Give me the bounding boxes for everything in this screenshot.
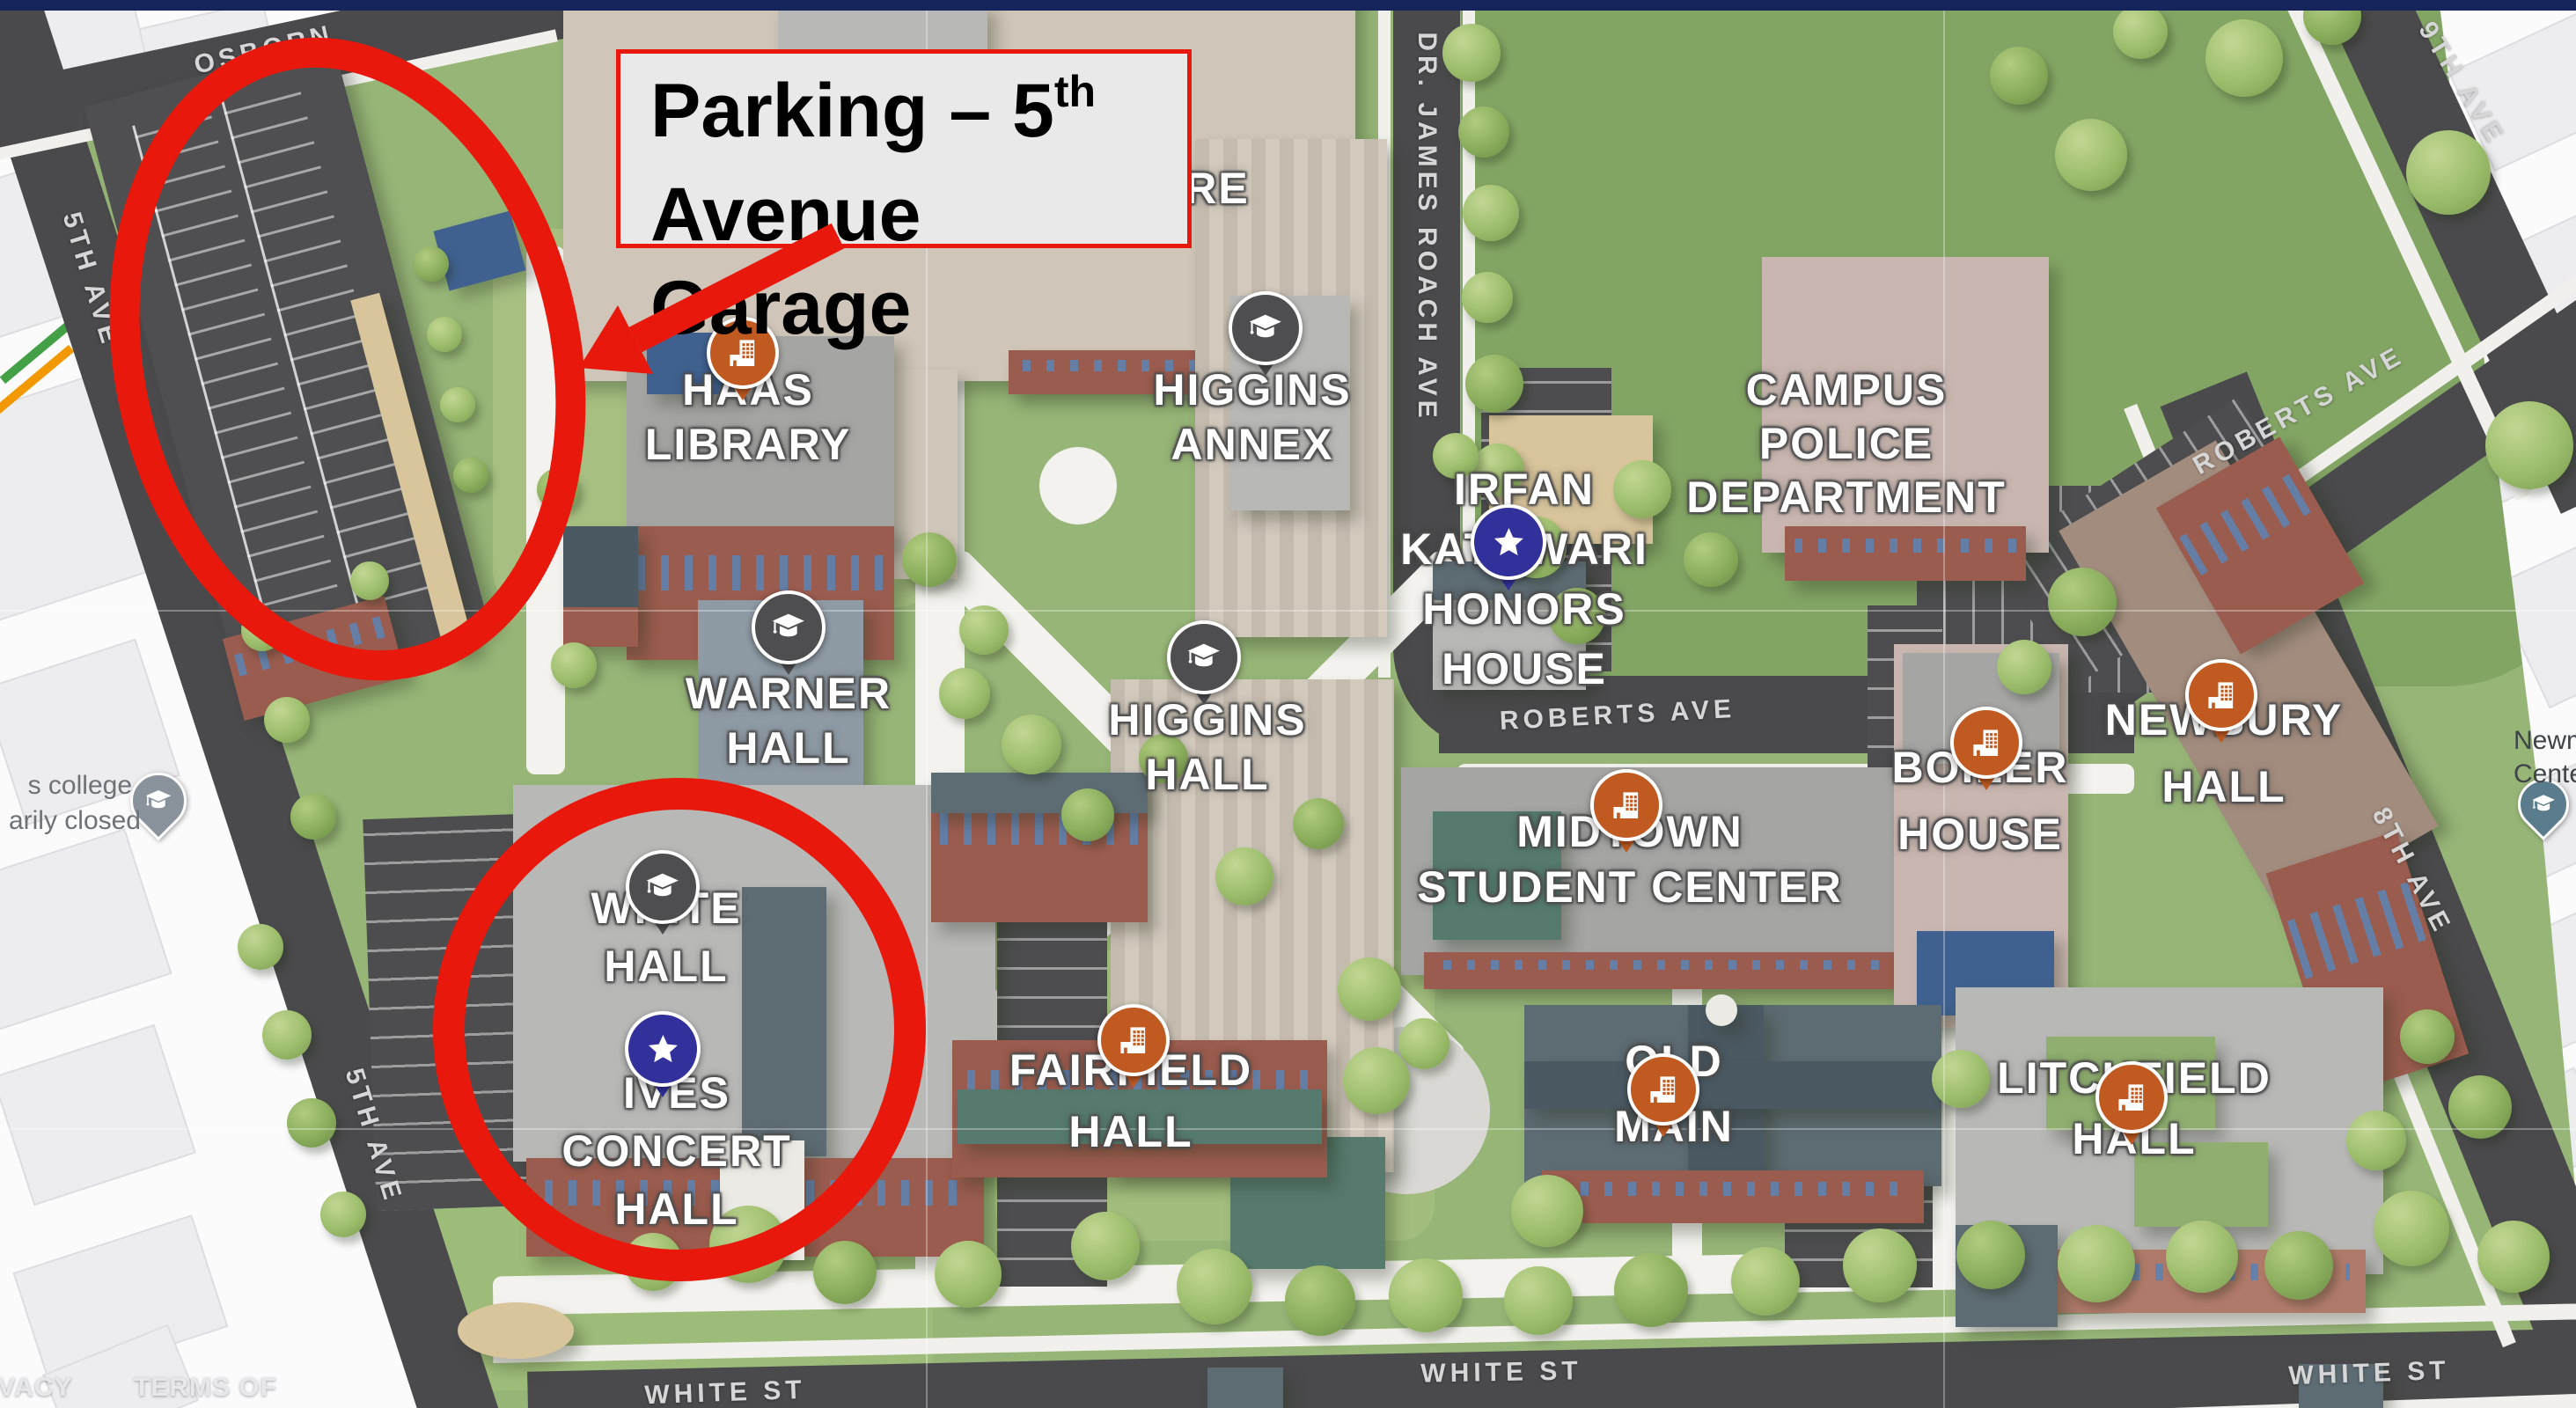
top-navy-bar <box>0 0 2576 11</box>
building-icon <box>1590 769 1662 841</box>
building-label-line: HOUSE <box>1892 801 2069 868</box>
tree <box>1071 1212 1140 1280</box>
tree <box>1293 798 1344 849</box>
building-icon <box>1627 1053 1699 1126</box>
tree <box>287 1098 336 1148</box>
tree <box>1932 1050 1990 1108</box>
old-main-pin[interactable] <box>1627 1053 1699 1126</box>
tree <box>959 605 1009 655</box>
building-label-line: HALL <box>686 721 892 775</box>
tree <box>2374 1191 2449 1266</box>
building-label-ives-concert-hall[interactable]: IVESCONCERTHALL <box>561 1064 791 1238</box>
building-label-line: HALL <box>561 1180 791 1238</box>
tree <box>2113 4 2168 59</box>
tile-seam <box>1943 0 1945 1408</box>
tree <box>1843 1228 1917 1302</box>
newman-center-label-line1: Newm <box>2514 726 2576 756</box>
grad-cap-icon <box>1167 620 1241 694</box>
tree <box>1343 1047 1410 1114</box>
privacy-link[interactable]: IVACY <box>0 1373 72 1403</box>
tree <box>537 468 579 510</box>
tree <box>440 387 475 422</box>
parking-callout: Parking – 5th Avenue Garage <box>616 49 1192 248</box>
tree <box>1462 272 1513 323</box>
tree <box>551 642 597 688</box>
playground <box>458 1302 574 1359</box>
tree <box>262 1010 312 1060</box>
white-hall-pin[interactable] <box>626 850 700 924</box>
tree <box>1458 106 1509 158</box>
tree <box>1614 1253 1688 1327</box>
tree <box>902 532 957 587</box>
west-house-roof <box>563 526 638 614</box>
building-label-line: HOUSE <box>1400 639 1648 699</box>
offmap-parcel <box>0 1024 196 1206</box>
tree <box>453 458 488 493</box>
newbury-hall-pin[interactable] <box>2185 659 2257 731</box>
tree <box>2264 1231 2333 1300</box>
street-label-dr-james-roach-ave: DR. JAMES ROACH AVE <box>1412 32 1442 422</box>
tree <box>1177 1249 1252 1324</box>
tree <box>2400 1009 2455 1064</box>
tree <box>1731 1247 1800 1316</box>
tree <box>2058 1225 2135 1302</box>
tree <box>939 668 990 719</box>
tree <box>1389 1258 1463 1332</box>
tree <box>1398 1018 1449 1069</box>
tree <box>264 697 310 743</box>
old-main-face <box>1542 1170 1924 1223</box>
building-label-line: DEPARTMENT <box>1686 471 2007 524</box>
street-label-white-st: WHITE ST <box>2288 1356 2450 1391</box>
tree <box>427 317 462 352</box>
building-label-line: POLICE <box>1686 417 2007 471</box>
tree <box>1463 185 1519 241</box>
tree <box>1990 47 2048 105</box>
tree <box>1215 847 1273 906</box>
campus-police-face <box>1785 526 2026 581</box>
building-label-line: LIBRARY <box>645 417 851 472</box>
tree <box>1684 532 1738 587</box>
grad-cap-icon <box>752 590 826 664</box>
tree <box>1338 957 1401 1021</box>
tile-seam <box>0 610 2576 612</box>
fairfield-hall-pin[interactable] <box>1097 1004 1170 1076</box>
newman-center-label-line2: Cente <box>2514 759 2576 789</box>
tree <box>2346 1111 2406 1170</box>
building-label-line: CONCERT <box>561 1122 791 1180</box>
building-icon <box>1097 1004 1170 1076</box>
grad-cap-icon <box>626 850 700 924</box>
tree <box>935 1241 1002 1308</box>
building-label-line: RE <box>1185 162 1249 215</box>
building-label-line: ANNEX <box>1153 417 1351 472</box>
tree <box>2205 19 2283 97</box>
tree <box>813 1241 877 1304</box>
star-icon <box>1471 504 1546 580</box>
boiler-house-pin[interactable] <box>1950 707 2022 779</box>
tree <box>1002 715 1061 774</box>
tree <box>624 1233 682 1291</box>
building-label-campus-police-department[interactable]: CAMPUSPOLICEDEPARTMENT <box>1686 363 2007 524</box>
old-main-cupola <box>1706 994 1737 1026</box>
star-icon <box>625 1011 701 1087</box>
tree <box>2406 130 2491 215</box>
building-label-line: HALL <box>1108 747 1306 802</box>
tree <box>320 1192 366 1237</box>
building-icon <box>1950 707 2022 779</box>
building-label-line: HALL <box>1009 1101 1252 1162</box>
tree <box>1511 1175 1583 1247</box>
irfan-kathwari-honors-house-pin[interactable] <box>1471 504 1546 580</box>
closed-college-label-line1: s college <box>28 771 132 801</box>
warner-hall-pin[interactable] <box>752 590 826 664</box>
midtown-face <box>1424 952 1904 989</box>
terms-link[interactable]: TERMS OF <box>134 1373 277 1403</box>
closed-college-label-line2: arily closed <box>9 806 141 836</box>
street-label-white-st: WHITE ST <box>1420 1356 1582 1389</box>
grad-cap-icon <box>1229 291 1303 365</box>
tree <box>350 561 389 600</box>
higgins-annex-pin[interactable] <box>1229 291 1303 365</box>
building-icon <box>2095 1061 2168 1133</box>
tree <box>1285 1265 1355 1336</box>
tree <box>414 246 449 282</box>
tree <box>241 609 283 651</box>
tree <box>1465 355 1523 413</box>
building-label-line: HALL <box>2105 753 2343 820</box>
parking-callout-text: Parking – 5th Avenue Garage <box>650 64 1096 355</box>
litchfield-hall-pin[interactable] <box>2095 1061 2168 1133</box>
midtown-student-center-pin[interactable] <box>1590 769 1662 841</box>
tree <box>2048 568 2117 636</box>
building-icon <box>2185 659 2257 731</box>
ives-concert-hall-pin[interactable] <box>625 1011 701 1087</box>
tree <box>2485 401 2573 489</box>
tree <box>290 794 336 840</box>
campus-map[interactable]: OSBORN5TH AVE5TH AVEDR. JAMES ROACH AVER… <box>0 0 2576 1408</box>
tree <box>238 924 283 970</box>
quad-plaza <box>1039 447 1117 524</box>
tree <box>2055 119 2127 191</box>
tree <box>1997 640 2051 694</box>
west-house-face <box>563 607 638 647</box>
building-label-line: HONORS <box>1400 579 1648 639</box>
street-label-white-st: WHITE ST <box>644 1375 806 1408</box>
building-label-line: CAMPUS <box>1686 363 2007 417</box>
tree <box>1956 1221 2025 1289</box>
tree <box>1504 1266 1573 1335</box>
tree <box>2166 1221 2238 1293</box>
walking-path <box>526 246 565 774</box>
bus-shelter-mid <box>1207 1368 1283 1408</box>
tree <box>1442 24 1501 82</box>
building-label-line: STUDENT CENTER <box>1417 860 1843 915</box>
offmap-parcel <box>0 828 172 1032</box>
building-label-partial-label-re[interactable]: RE <box>1185 162 1249 215</box>
tree <box>2477 1221 2550 1293</box>
higgins-hall-pin[interactable] <box>1167 620 1241 694</box>
tree <box>1061 788 1114 841</box>
